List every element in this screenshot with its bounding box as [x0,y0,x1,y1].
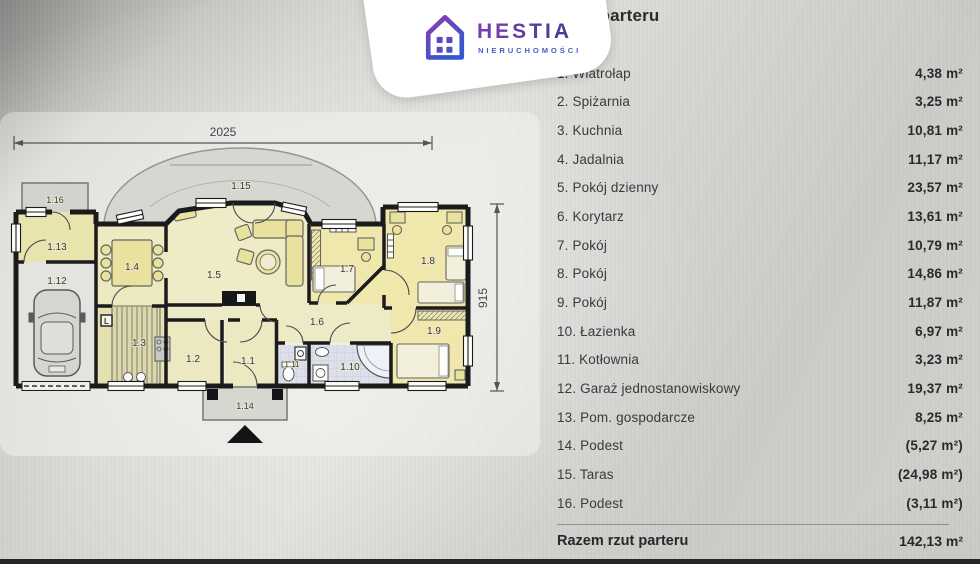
total-row: Razem rzut parteru 142,13 m² [557,533,963,549]
label-1-5: 1.5 [207,270,221,281]
label-1-4: 1.4 [125,262,139,273]
room-utility-1-13 [16,212,96,262]
list-item: 3. Kuchnia10,81 m² [557,116,963,145]
garage-door [22,382,90,391]
fireplace-insert [237,294,245,302]
list-item: 1. Wiatrołap4,38 m² [557,59,963,88]
list-item: 16. Podest(3,11 m²) [557,489,963,518]
list-item: 12. Garaż jednostanowiskowy19,37 m² [557,374,963,403]
room-pantry-1-2 [166,320,222,386]
list-item: 5. Pokój dzienny23,57 m² [557,174,963,203]
room-schedule: Rzut parteru 1. Wiatrołap4,38 m² 2. Spiż… [557,0,963,564]
list-item: 7. Pokój10,79 m² [557,231,963,260]
list-item: 6. Korytarz13,61 m² [557,202,963,231]
label-1-12: 1.12 [47,276,67,287]
dim-width-label: 2025 [210,125,237,139]
label-1-3: 1.3 [132,338,146,349]
brand-subtitle: NIERUCHOMOŚCI [478,46,581,55]
room-vestibule-1-1 [225,320,277,386]
list-item: 2. Spiżarnia3,25 m² [557,88,963,117]
house-icon [420,9,470,63]
list-item: 15. Taras(24,98 m²) [557,460,963,489]
label-1-10: 1.10 [340,362,360,373]
dim-height-label: 915 [476,288,490,308]
label-1-13: 1.13 [47,242,67,253]
label-1-8: 1.8 [421,256,435,267]
room-list: 1. Wiatrołap4,38 m² 2. Spiżarnia3,25 m² … [557,59,963,518]
label-1-16: 1.16 [46,195,64,205]
total-divider [557,524,949,525]
list-item: 9. Pokój11,87 m² [557,288,963,317]
list-item: 14. Podest(5,27 m²) [557,432,963,461]
brand-name: HESTIA [477,20,572,44]
car-icon [29,290,85,376]
stair-mark-label: L [104,317,109,326]
label-1-14: 1.14 [236,401,254,411]
list-item: 10. Łazienka6,97 m² [557,317,963,346]
label-1-2: 1.2 [186,354,200,365]
label-1-6: 1.6 [310,317,324,328]
label-1-11: 1.11 [285,360,301,369]
room-corridor-1-6 [277,303,391,343]
label-1-1: 1.1 [241,356,255,367]
list-item: 13. Pom. gospodarcze8,25 m² [557,403,963,432]
label-1-15: 1.15 [231,181,251,192]
label-1-7: 1.7 [340,264,354,275]
list-item: 11. Kotłownia3,23 m² [557,346,963,375]
list-item: 4. Jadalnia11,17 m² [557,145,963,174]
stair-mark-box: L [101,315,112,326]
label-1-9: 1.9 [427,326,441,337]
list-item: 8. Pokój14,86 m² [557,260,963,289]
bottom-dark-bar [0,559,980,564]
